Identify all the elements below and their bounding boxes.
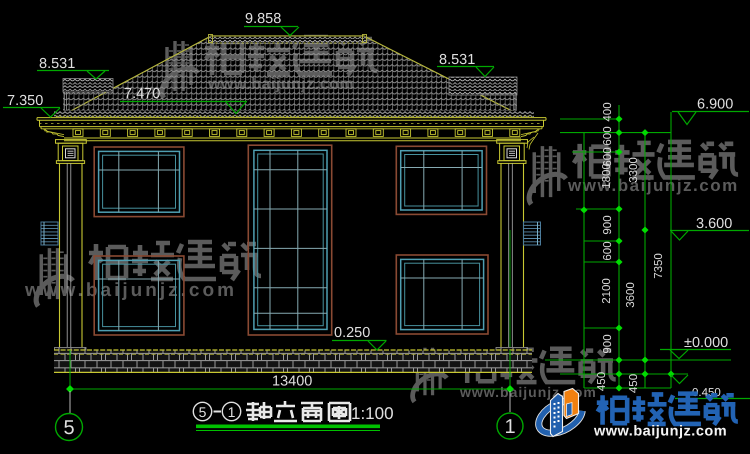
svg-text:5: 5 xyxy=(199,404,207,420)
svg-text:2100: 2100 xyxy=(601,278,613,304)
svg-text:3600: 3600 xyxy=(625,282,637,308)
svg-text:3300: 3300 xyxy=(628,157,640,183)
svg-text:600: 600 xyxy=(602,126,614,145)
svg-text:7.470: 7.470 xyxy=(124,86,160,102)
svg-text:0.250: 0.250 xyxy=(334,325,370,341)
svg-text:13400: 13400 xyxy=(272,374,312,390)
svg-text:www.baijunjz.com: www.baijunjz.com xyxy=(24,280,237,301)
svg-text:600: 600 xyxy=(602,241,614,260)
svg-text:7.350: 7.350 xyxy=(7,93,43,109)
svg-text:www.baijunjz.com: www.baijunjz.com xyxy=(593,424,727,440)
svg-text:1: 1 xyxy=(228,404,236,420)
svg-text:450: 450 xyxy=(596,372,608,391)
svg-text:8.531: 8.531 xyxy=(39,56,75,72)
svg-text:5: 5 xyxy=(63,417,74,439)
svg-text:1800: 1800 xyxy=(601,163,613,189)
svg-text:900: 900 xyxy=(602,334,614,353)
svg-text:www.baijunjz.com: www.baijunjz.com xyxy=(567,176,739,195)
svg-text:9.858: 9.858 xyxy=(245,11,281,27)
svg-text:400: 400 xyxy=(602,102,614,121)
svg-text:900: 900 xyxy=(602,215,614,234)
svg-text:6.900: 6.900 xyxy=(697,97,733,113)
svg-text:1: 1 xyxy=(504,416,515,438)
svg-text:7350: 7350 xyxy=(653,253,665,279)
svg-text:8.531: 8.531 xyxy=(439,52,475,68)
svg-text:±0.000: ±0.000 xyxy=(684,335,728,351)
svg-text:450: 450 xyxy=(628,374,640,393)
svg-text:1:100: 1:100 xyxy=(351,404,394,423)
svg-text:3.600: 3.600 xyxy=(696,216,732,232)
